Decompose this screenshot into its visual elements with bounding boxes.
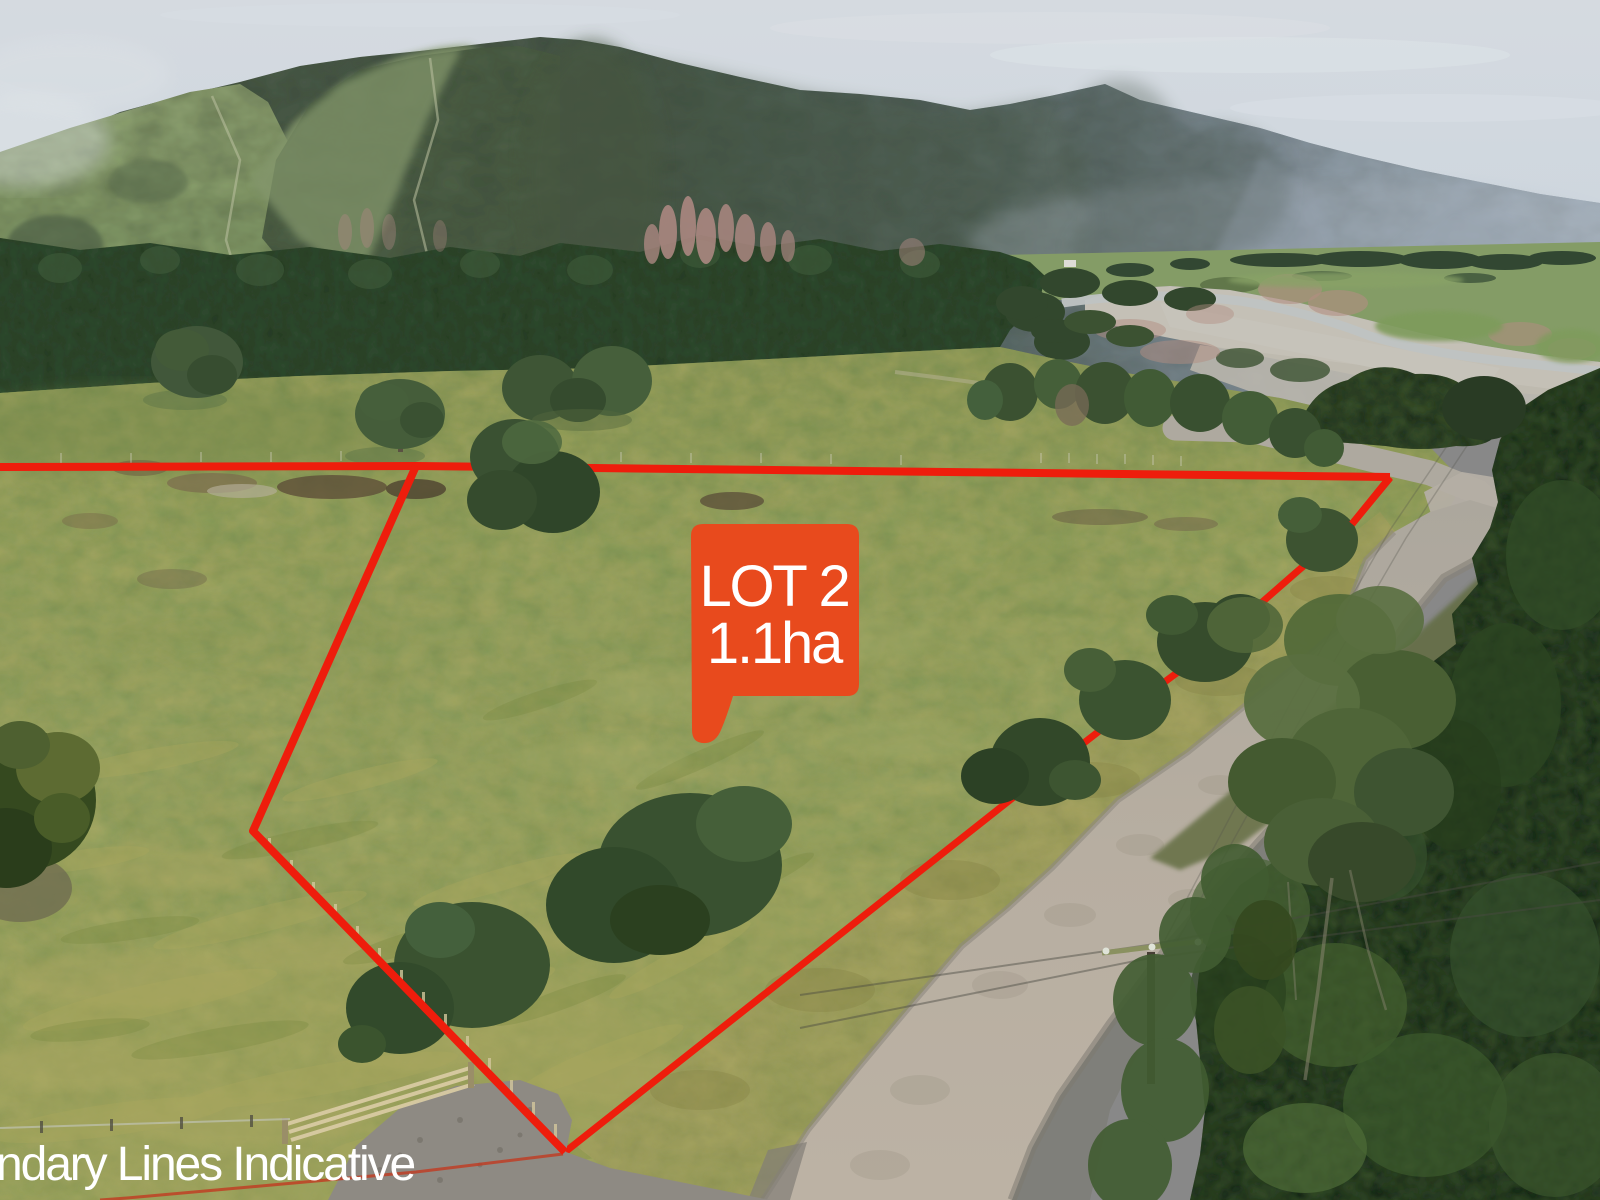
svg-text:ndary Lines Indicative: ndary Lines Indicative [0, 1138, 414, 1191]
svg-text:LOT 2: LOT 2 [699, 554, 848, 619]
svg-text:1.1ha: 1.1ha [707, 611, 844, 676]
